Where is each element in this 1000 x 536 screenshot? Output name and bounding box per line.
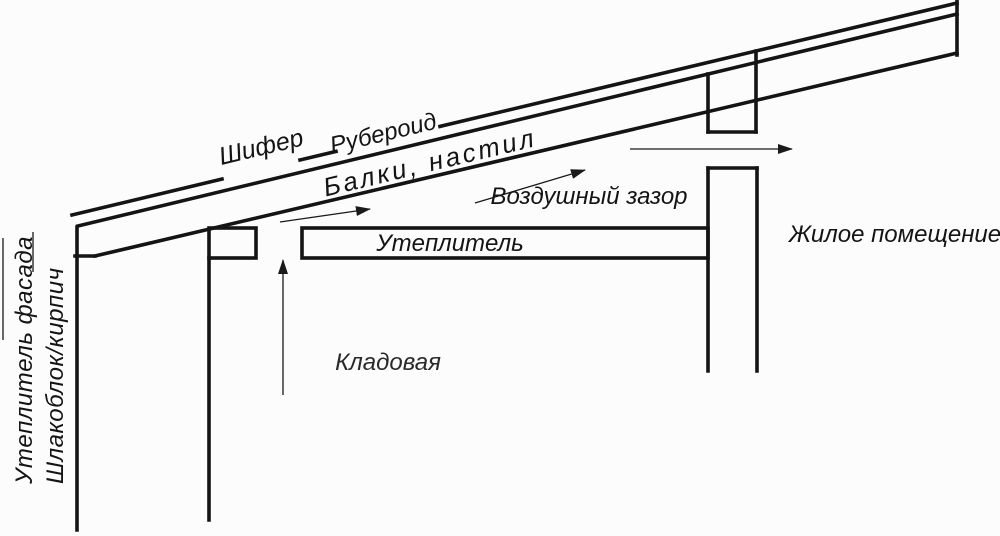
construction-scheme-canvas: Шифер Рубероид Балки, настил Воздушный з… [0, 0, 1000, 536]
label-air-gap: Воздушный зазор [490, 183, 687, 210]
roof-insulation-scheme: Шифер Рубероид Балки, настил Воздушный з… [0, 0, 1000, 536]
left-outer-wall [75, 227, 95, 530]
label-wall-material: Шлакоблок/кирпич [42, 267, 69, 484]
label-facade-insulation: Утеплитель фасада [11, 236, 38, 485]
right-wall [708, 168, 757, 371]
label-insulation: Утеплитель [375, 230, 523, 257]
beam-cross-section-box [209, 228, 256, 258]
label-living-space: Жилое помещение [788, 221, 1000, 248]
inner-wall-and-beam [209, 228, 256, 520]
label-roofing-slate: Шифер [216, 124, 306, 171]
label-storage-room: Кладовая [335, 349, 441, 376]
